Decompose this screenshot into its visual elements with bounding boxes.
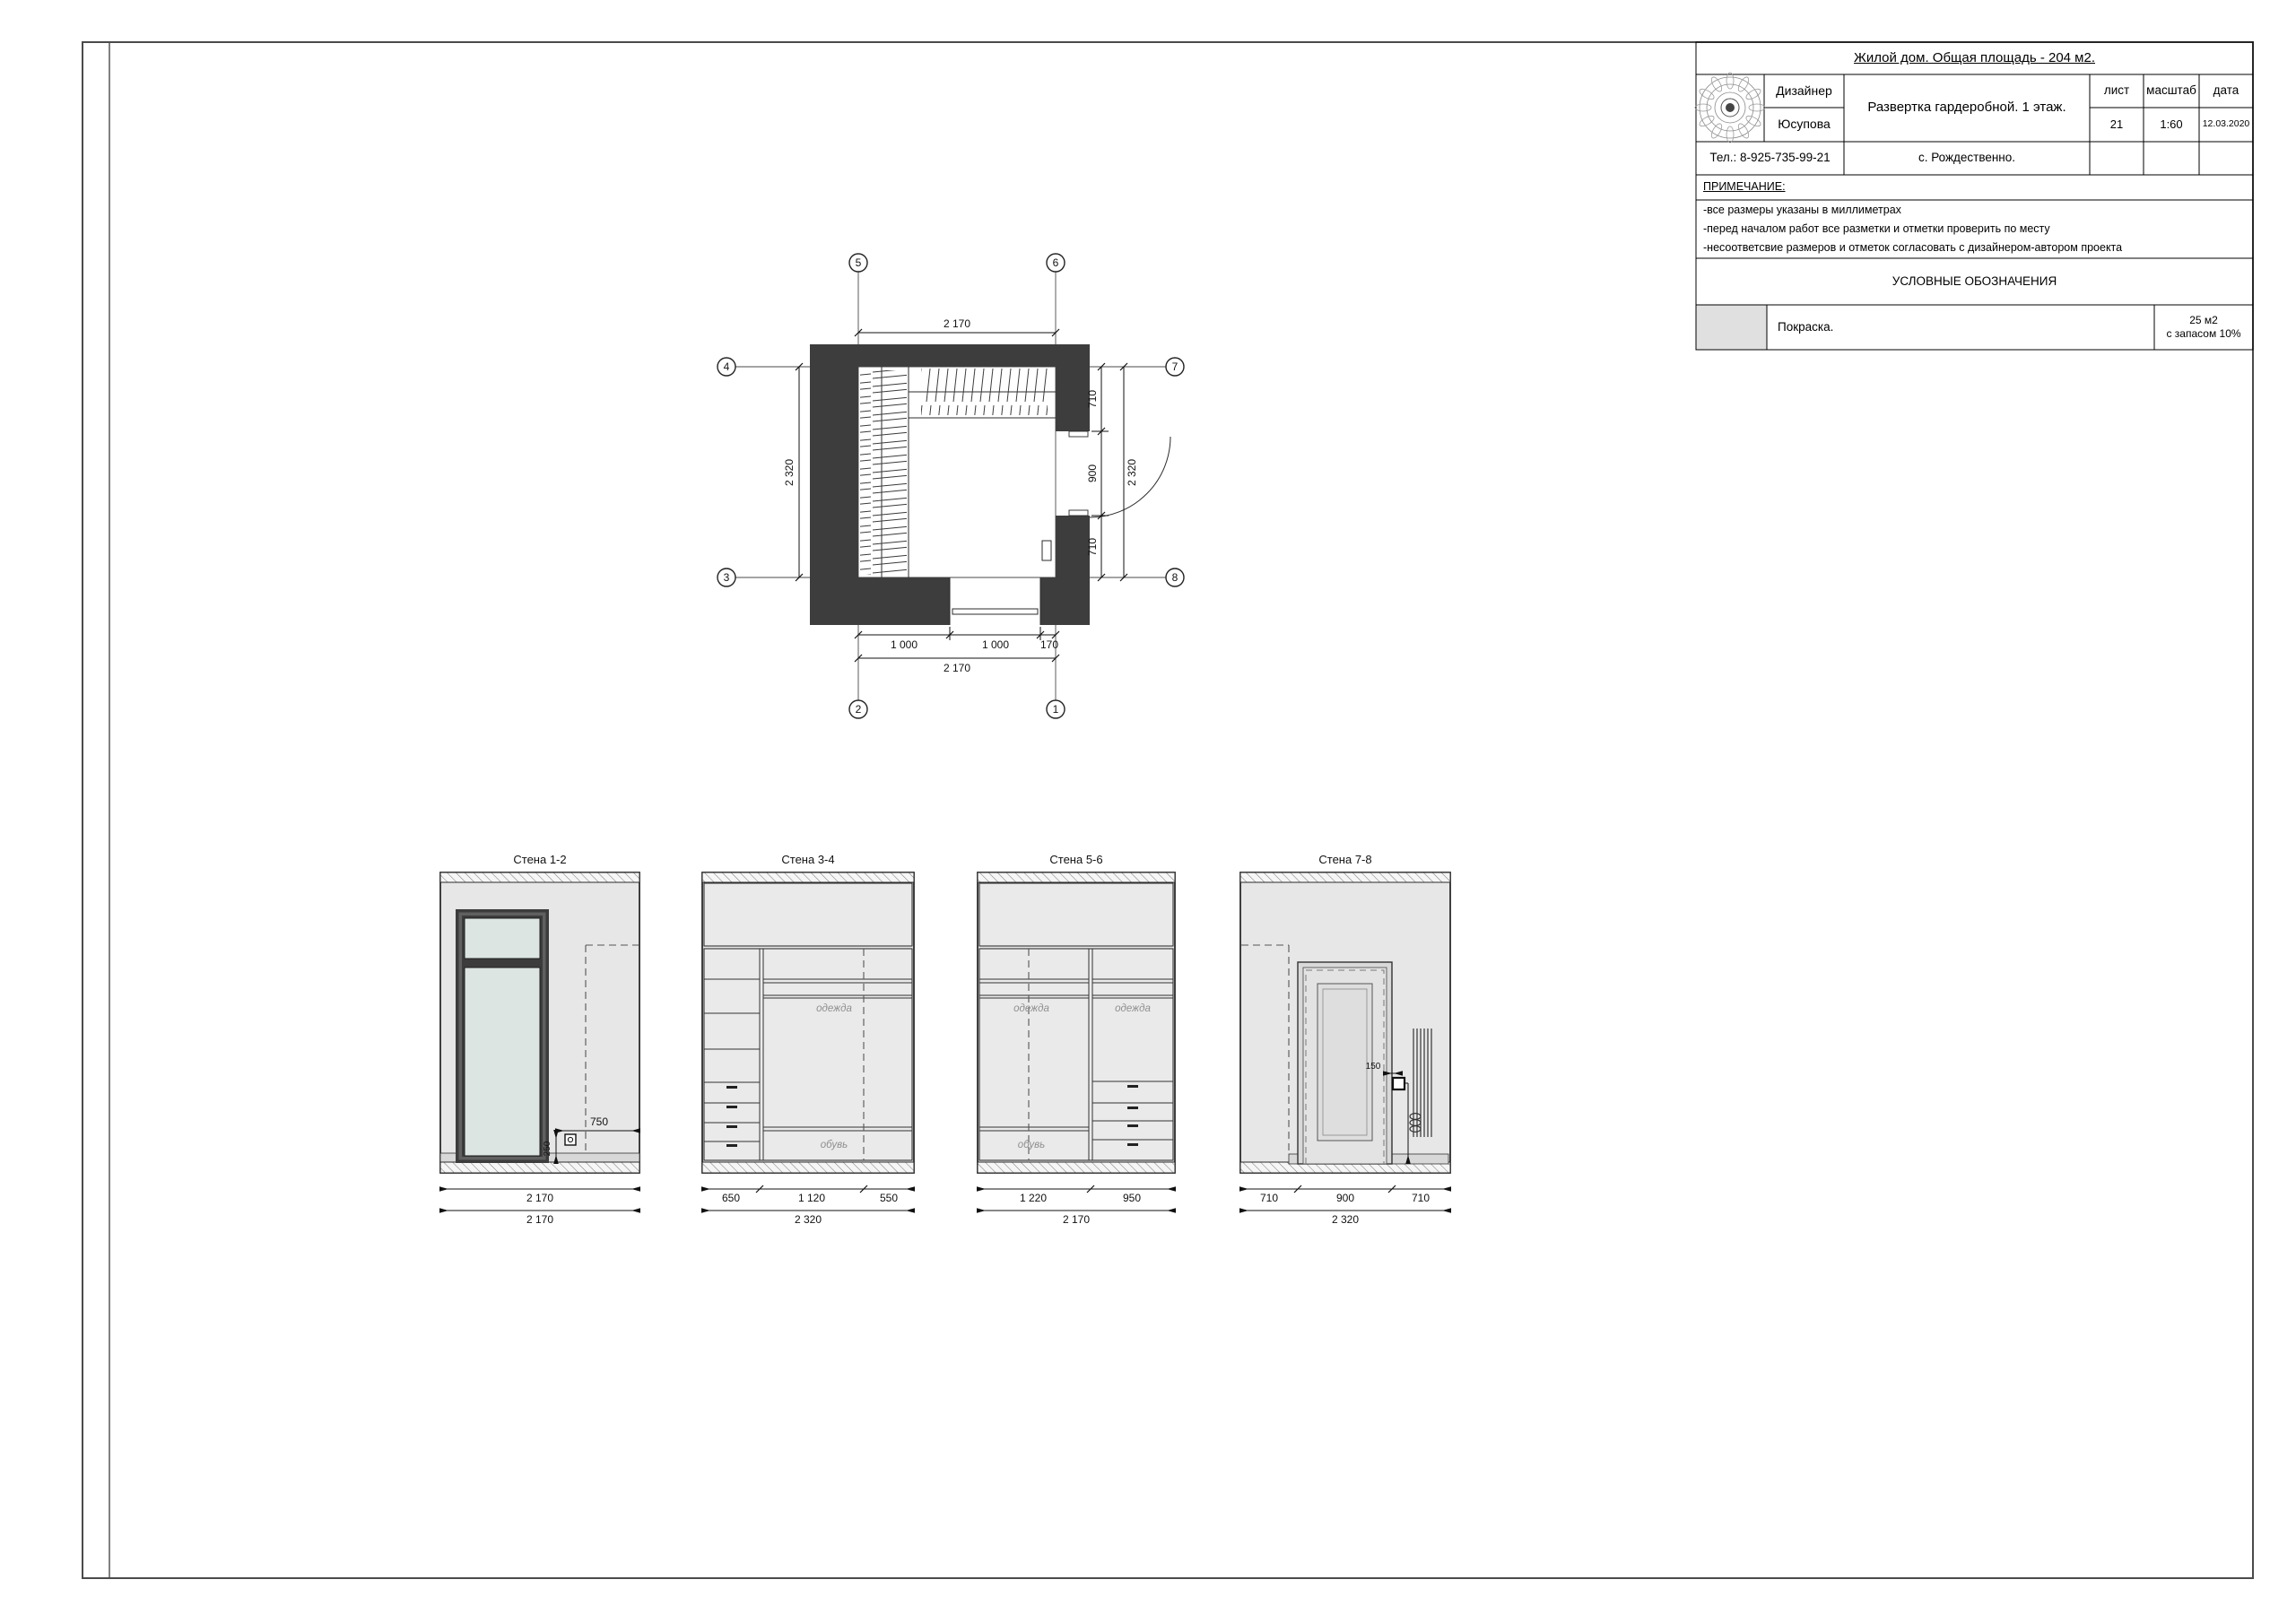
project-title: Жилой дом. Общая площадь - 204 м2. — [1696, 42, 2253, 74]
drawer-handle — [726, 1125, 737, 1128]
plan-door — [1069, 431, 1170, 517]
elevation-2-title: Стена 3-4 — [781, 853, 834, 866]
plan-dim-right-total: 2 320 — [1126, 459, 1138, 486]
elev1-dim-socket-h: 750 — [590, 1115, 608, 1128]
window-pane-top — [465, 918, 540, 959]
elevation-4-title: Стена 7-8 — [1318, 853, 1371, 866]
note-line: -несоответсвие размеров и отметок соглас… — [1703, 239, 2246, 257]
lower-cabinet — [979, 949, 1173, 1160]
elev2-dim-3: 550 — [880, 1192, 898, 1204]
designer-label: Дизайнер — [1764, 74, 1844, 108]
elev1-dim-width: 2 170 — [526, 1192, 553, 1204]
axis-1: 1 — [1053, 703, 1059, 716]
drawer-handle — [726, 1086, 737, 1089]
elev2-dim-1: 650 — [722, 1192, 740, 1204]
drawing-sheet: 5 6 4 7 3 8 2 1 2 170 1 000 1 000 170 — [0, 0, 2296, 1623]
plan-dim-bottom-2: 1 000 — [982, 638, 1009, 651]
note-line: -перед началом работ все разметки и отме… — [1703, 220, 2246, 239]
elev4-dim-2: 900 — [1336, 1192, 1354, 1204]
legend-qty-line2: с запасом 10% — [2166, 327, 2240, 341]
elev4-dim-3: 710 — [1412, 1192, 1430, 1204]
plan-wardrobe-top — [909, 369, 1056, 418]
label-shoes: обувь — [1018, 1140, 1045, 1150]
axis-7: 7 — [1172, 360, 1178, 373]
designer-name: Юсупова — [1764, 108, 1844, 142]
elev3-dim-2: 950 — [1123, 1192, 1141, 1204]
date-value: 12.03.2020 — [2199, 108, 2253, 142]
plan-dim-right-2: 900 — [1086, 464, 1099, 482]
label-clothes: одежда — [1013, 1003, 1049, 1014]
drawer-handle — [726, 1106, 737, 1108]
scale-label: масштаб — [2144, 74, 2199, 108]
legend-quantity: 25 м2 с запасом 10% — [2154, 305, 2253, 350]
label-clothes: одежда — [1115, 1003, 1151, 1014]
drawer-handle — [1127, 1143, 1138, 1146]
elev4-dim-1: 710 — [1260, 1192, 1278, 1204]
elevation-wall-3-4: Стена 3-4 — [702, 853, 914, 1226]
plan-dim-bottom-3: 170 — [1040, 638, 1058, 651]
socket — [565, 1134, 576, 1145]
plan-switch-icon — [1042, 541, 1051, 560]
sheet-number: 21 — [2090, 108, 2144, 142]
elevation-wall-7-8: Стена 7-8 150 — [1240, 853, 1450, 1226]
elev2-dim-2: 1 120 — [798, 1192, 825, 1204]
axis-6: 6 — [1053, 256, 1059, 269]
plan-dim-top: 2 170 — [944, 317, 970, 330]
switch-icon — [1393, 1078, 1405, 1089]
drawing-title: Развертка гардеробной. 1 этаж. — [1844, 74, 2090, 142]
window — [456, 909, 549, 1163]
elevation-wall-1-2: Стена 1-2 750 250 2 170 2 170 — [440, 853, 639, 1226]
axis-8: 8 — [1172, 571, 1178, 584]
elevation-3-title: Стена 5-6 — [1049, 853, 1102, 866]
phone: Тел.: 8-925-735-99-21 — [1696, 142, 1844, 175]
axis-4: 4 — [724, 360, 730, 373]
plan-dim-bottom-1: 1 000 — [891, 638, 918, 651]
elev4-dim-switch: 150 — [1366, 1062, 1381, 1072]
location: с. Рождественно. — [1844, 142, 2090, 175]
plan-dim-right-3: 710 — [1086, 538, 1099, 556]
elevation-wall-5-6: Стена 5-6 одежда обувь — [978, 853, 1175, 1226]
lower-cabinet — [704, 949, 912, 1160]
floor-plan: 5 6 4 7 3 8 2 1 2 170 1 000 1 000 170 — [717, 254, 1184, 718]
legend-qty-line1: 25 м2 — [2189, 314, 2218, 327]
drawer-handle — [1127, 1107, 1138, 1109]
legend-heading: УСЛОВНЫЕ ОБОЗНАЧЕНИЯ — [1696, 258, 2253, 305]
notes-block: -все размеры указаны в миллиметрах -пере… — [1703, 200, 2246, 258]
note-heading: ПРИМЕЧАНИЕ: — [1703, 175, 2246, 200]
elev1-dim-total: 2 170 — [526, 1213, 553, 1226]
plan-wardrobe-left — [860, 367, 909, 577]
window-pane-bottom — [465, 968, 540, 1156]
date-label: дата — [2199, 74, 2253, 108]
plan-dim-bottom-total: 2 170 — [944, 662, 970, 674]
label-shoes: обувь — [821, 1140, 848, 1150]
designer-logo — [1695, 73, 1765, 143]
elev3-dim-total: 2 170 — [1063, 1213, 1090, 1226]
sheet-label: лист — [2090, 74, 2144, 108]
axis-3: 3 — [724, 571, 730, 584]
elevation-1-title: Стена 1-2 — [513, 853, 566, 866]
axis-2: 2 — [856, 703, 862, 716]
elev1-dim-socket-v: 250 — [543, 1141, 552, 1156]
radiator — [1410, 1028, 1431, 1137]
elev2-dim-total: 2 320 — [795, 1213, 822, 1226]
axis-5: 5 — [856, 256, 862, 269]
upper-cabinet — [704, 883, 912, 946]
legend-paint-swatch — [1696, 305, 1767, 350]
plan-dim-right-1: 710 — [1086, 390, 1099, 408]
scale-value: 1:60 — [2144, 108, 2199, 142]
legend-item: Покраска. — [1778, 305, 2145, 350]
upper-cabinet — [979, 883, 1173, 946]
note-line: -все размеры указаны в миллиметрах — [1703, 201, 2246, 220]
elev4-dim-total: 2 320 — [1332, 1213, 1359, 1226]
door-panel — [1318, 984, 1372, 1141]
plan-dim-left: 2 320 — [783, 459, 796, 486]
plan-window — [950, 577, 1040, 625]
drawer-handle — [1127, 1124, 1138, 1127]
elev3-dim-1: 1 220 — [1020, 1192, 1047, 1204]
label-clothes: одежда — [816, 1003, 852, 1014]
drawer-handle — [1127, 1085, 1138, 1088]
drawer-handle — [726, 1144, 737, 1147]
